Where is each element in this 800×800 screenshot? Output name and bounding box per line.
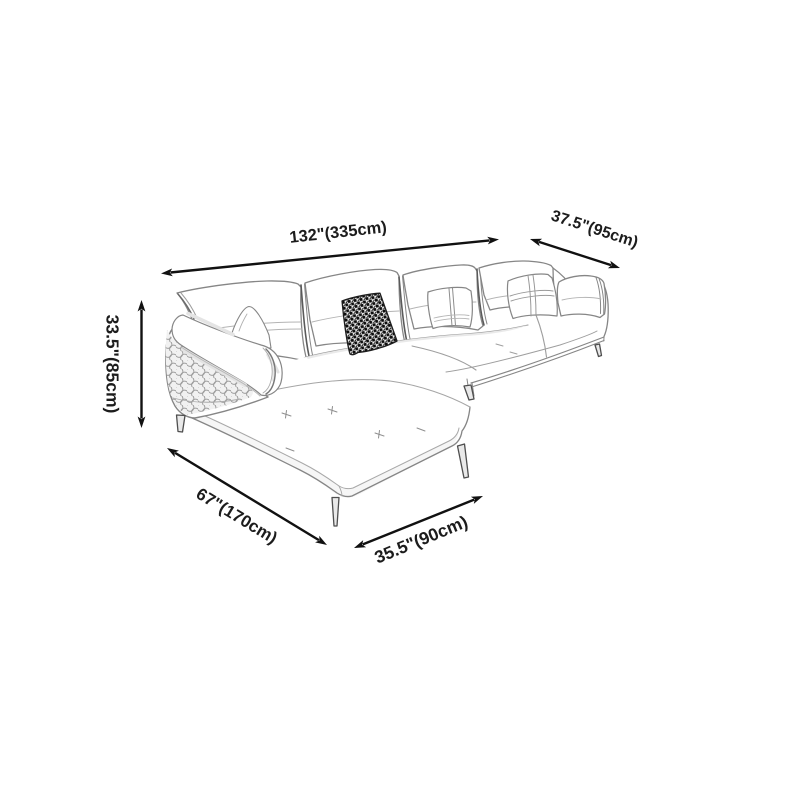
svg-text:67"(170cm): 67"(170cm) bbox=[193, 484, 281, 548]
svg-text:33.5"(85cm): 33.5"(85cm) bbox=[103, 315, 123, 414]
svg-text:132"(335cm): 132"(335cm) bbox=[289, 218, 388, 247]
svg-text:37.5"(95cm): 37.5"(95cm) bbox=[549, 207, 640, 251]
